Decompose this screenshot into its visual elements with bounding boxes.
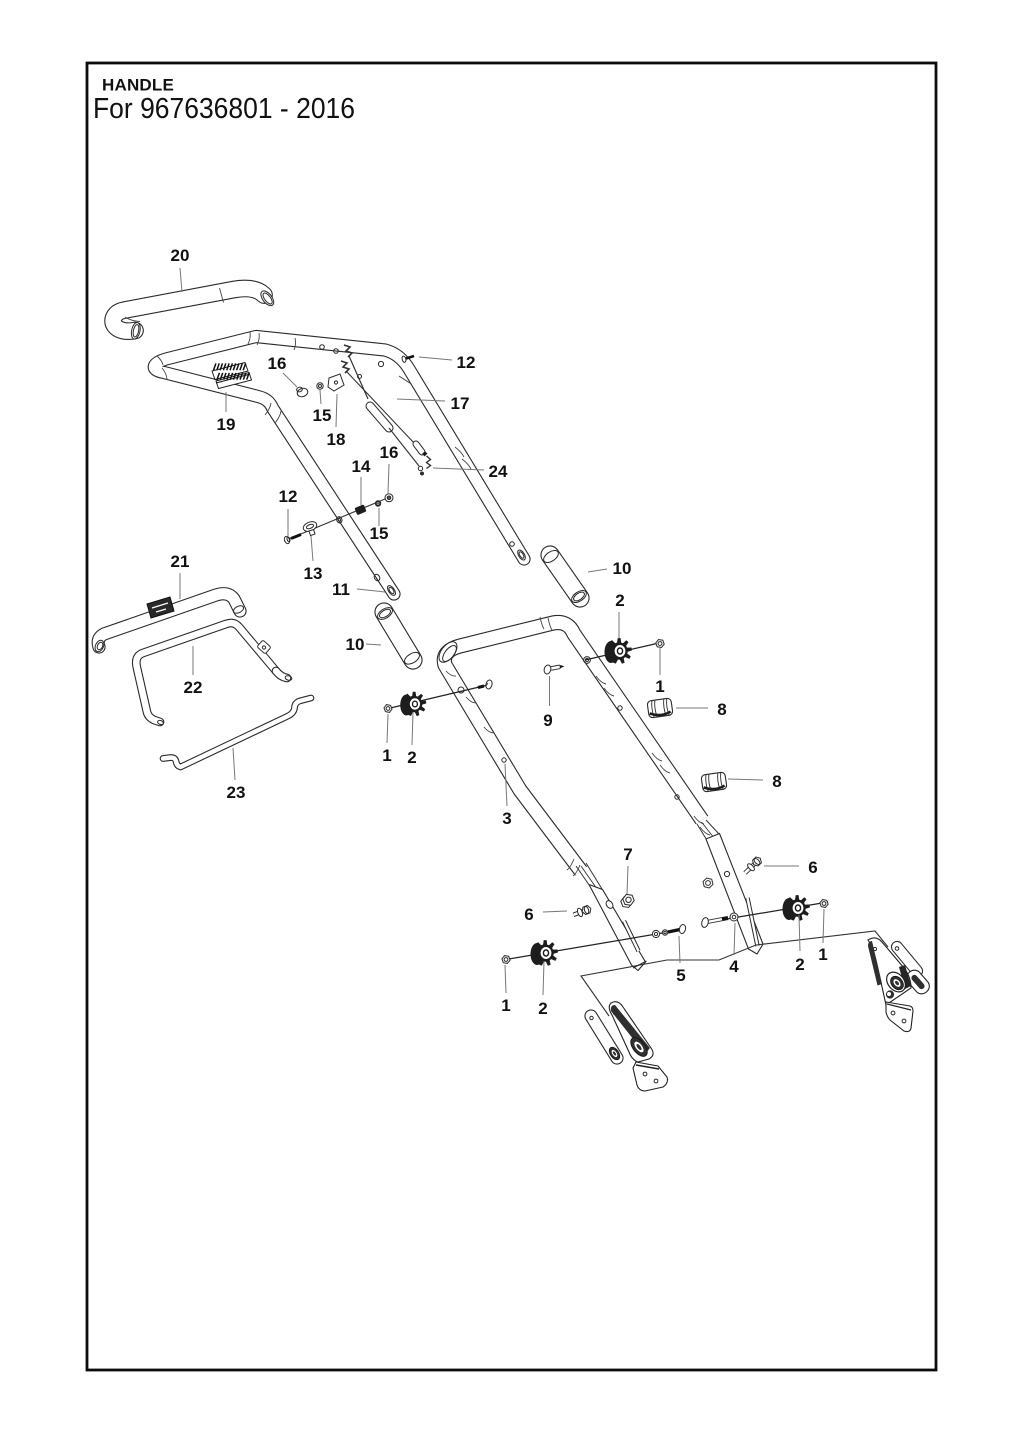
svg-text:15: 15 [370,524,389,543]
svg-text:HANDLE: HANDLE [102,76,174,95]
svg-text:9: 9 [543,711,552,730]
svg-text:17: 17 [451,394,470,413]
svg-text:7: 7 [623,845,632,864]
svg-text:12: 12 [279,487,298,506]
svg-text:2: 2 [795,955,804,974]
svg-text:1: 1 [382,746,391,765]
svg-text:1: 1 [818,945,827,964]
svg-text:For 967636801 - 2016: For 967636801 - 2016 [93,93,355,125]
svg-text:8: 8 [717,700,726,719]
svg-text:15: 15 [313,406,332,425]
svg-text:10: 10 [613,559,632,578]
svg-text:2: 2 [407,748,416,767]
svg-text:4: 4 [729,957,739,976]
svg-text:10: 10 [346,635,365,654]
svg-text:2: 2 [538,999,547,1018]
svg-text:21: 21 [171,552,190,571]
svg-text:16: 16 [380,443,399,462]
svg-text:22: 22 [184,678,203,697]
svg-text:8: 8 [772,772,781,791]
svg-text:11: 11 [332,580,350,599]
svg-text:2: 2 [615,591,624,610]
svg-text:3: 3 [502,809,511,828]
svg-text:6: 6 [524,905,533,924]
svg-text:19: 19 [217,415,236,434]
svg-text:14: 14 [352,457,371,476]
svg-text:16: 16 [268,354,287,373]
svg-text:24: 24 [489,462,508,481]
svg-text:18: 18 [327,430,346,449]
svg-text:13: 13 [304,564,323,583]
svg-text:6: 6 [808,858,817,877]
svg-text:1: 1 [501,996,510,1015]
svg-text:1: 1 [655,677,664,696]
svg-text:12: 12 [457,353,476,372]
svg-text:23: 23 [227,783,246,802]
svg-text:20: 20 [171,246,190,265]
svg-text:5: 5 [676,966,685,985]
